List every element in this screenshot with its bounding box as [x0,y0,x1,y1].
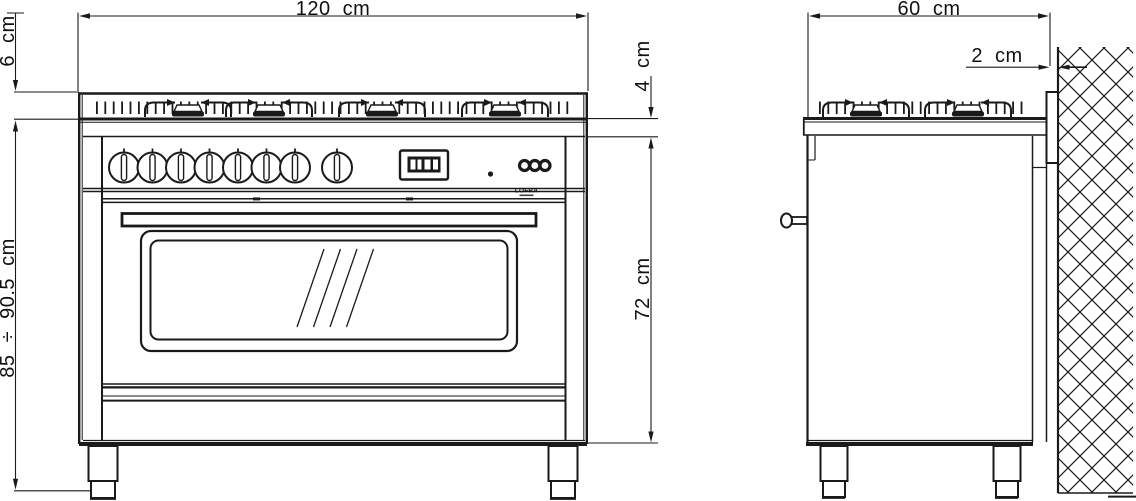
dimension-label-wall-clearance: 2 cm [971,45,1022,67]
brand-logo: LOFRA [515,188,538,197]
side-legs [821,446,1021,498]
control-knob [322,149,352,183]
side-handle-knob [781,214,807,228]
arrowhead-down-icon [13,479,18,490]
oven-button [530,161,540,171]
control-knob [280,149,310,183]
side-view: 60 cm 2 cm [781,0,1136,498]
arrowhead-left-icon [809,13,820,18]
dimension-width: 120 cm [78,0,588,91]
leg [994,446,1021,481]
front-view: 120 cm 6 cm 85 ÷ 90.5 cm 4 cm [0,0,658,499]
wall-hatch [1058,47,1133,493]
arrowhead-left-icon [79,13,90,18]
dimension-label-hob-lip: 4 cm [632,40,654,91]
arrowhead-down-icon [648,432,653,443]
control-knob [195,149,225,183]
arrowhead-right-icon [576,13,587,18]
control-knob [223,149,253,183]
oven-button [520,161,530,171]
arrowhead-down-icon [648,107,653,118]
control-knob [138,149,168,183]
burner [145,99,231,117]
hinge-mark [253,197,260,200]
arrowhead-down-icon [13,80,18,91]
oven-button [540,161,550,171]
leg-foot [91,481,115,498]
wall-section [1058,47,1136,497]
leg-foot [551,481,575,498]
arrowhead-up-icon [13,121,18,132]
leg-foot [996,481,1018,497]
leg-foot [823,481,845,497]
technical-drawing: 120 cm 6 cm 85 ÷ 90.5 cm 4 cm [0,0,1136,501]
door-window-glass [151,241,508,340]
indicator-dot [488,171,493,176]
dimension-hob-lip: 4 cm [588,40,658,136]
oven-door [122,214,536,352]
rear-riser [1047,92,1059,163]
logo-subtext-mark [520,195,534,197]
dimension-backguard-height: 6 cm [0,13,79,119]
dimension-label-oven-height: 72 cm [632,258,654,321]
leg [549,446,578,481]
control-knob [252,149,282,183]
leg [821,446,848,481]
svg-text:LOFRA: LOFRA [515,188,538,195]
dimension-label-overall-height: 85 ÷ 90.5 cm [0,238,19,377]
front-legs [89,446,578,499]
control-knob [109,149,139,183]
hinge-mark [406,197,413,200]
leg [89,446,118,481]
dimension-label-width: 120 cm [296,0,371,20]
arrowhead-right-icon [1038,13,1049,18]
oven-buttons [520,161,551,171]
drawing-canvas: 120 cm 6 cm 85 ÷ 90.5 cm 4 cm [0,0,1136,501]
range-side-body [781,92,1058,446]
dimension-label-depth: 60 cm [898,0,961,20]
door-handle [122,214,536,227]
oven-clock-display [400,151,448,180]
dimension-label-backguard: 6 cm [0,15,19,66]
arrowhead-up-icon [648,138,653,149]
control-knob [166,149,196,183]
dimension-oven-height: 72 cm [588,138,658,444]
base-plinth [79,442,587,446]
arrowhead-right-icon [1039,65,1050,70]
